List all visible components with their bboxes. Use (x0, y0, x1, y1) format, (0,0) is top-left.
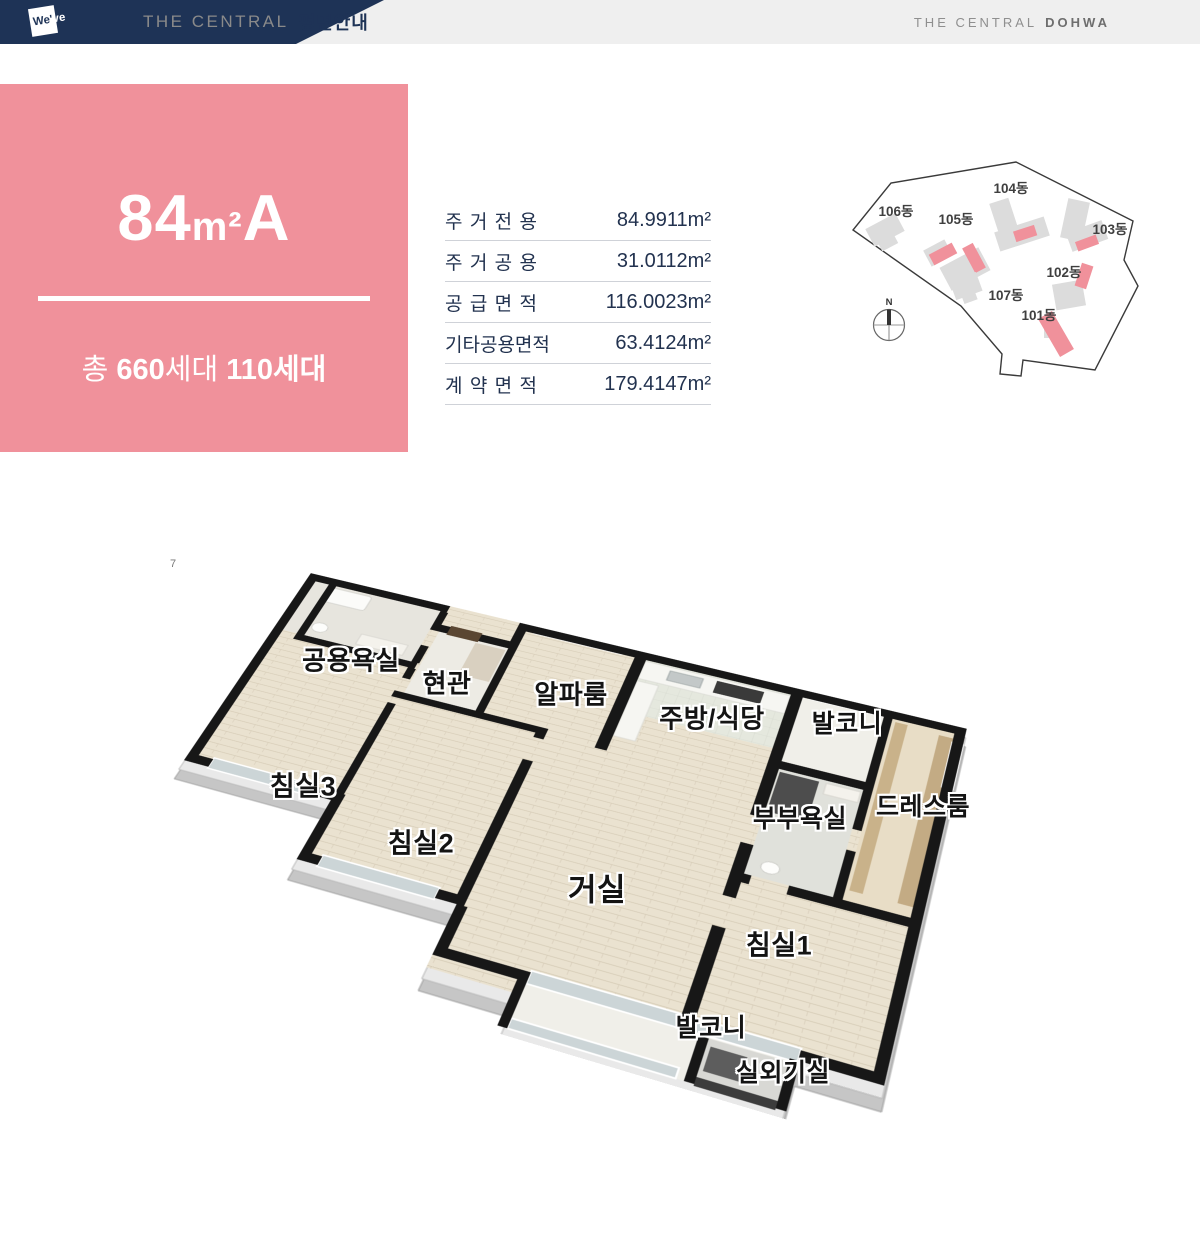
brochure-page: { "header": { "logo_a": "We'", "logo_b":… (0, 0, 1200, 1233)
area-value: 31.0112m² (617, 250, 711, 273)
logo-text-white: ve (52, 12, 67, 26)
logo-text-navy: We' (32, 14, 53, 29)
brand-right-name: THE CENTRAL (914, 15, 1037, 30)
area-value: 179.4147m² (604, 373, 711, 396)
area-table-row: 공급면적116.0023m² (445, 282, 711, 323)
area-value: 116.0023m² (606, 291, 711, 314)
floorplan-3d (71, 564, 999, 1156)
household-count-part: 660 (116, 354, 164, 386)
site-building-label: 106동 (879, 204, 914, 219)
area-table-row: 기타공용면적63.4124m² (445, 323, 711, 364)
household-count-part: 세대 (165, 354, 226, 386)
site-building-label: 105동 (939, 212, 974, 227)
brand-right-bold: DOHWA (1045, 15, 1110, 30)
compass-north-label: N (886, 297, 893, 308)
area-table-row: 주거전용84.9911m² (445, 200, 711, 241)
household-count-part: 110세대 (226, 354, 326, 386)
header-bar: We've THE CENTRAL 평면안내 THE CENTRAL DOHWA (0, 0, 1200, 44)
site-building-label: 102동 (1047, 265, 1082, 280)
unit-type-letter: A (243, 181, 291, 254)
floorplan-svg (71, 564, 999, 1156)
weve-logo: We've (28, 5, 58, 37)
household-count: 총 660세대 110세대 (0, 346, 408, 388)
page-title: 평면안내 (299, 9, 369, 35)
area-value: 63.4124m² (615, 332, 711, 355)
area-label: 주거전용 (445, 207, 537, 234)
stray-mark: 7 (170, 558, 176, 570)
unit-size: 84 (117, 181, 191, 254)
unit-type-panel: 84m²A 총 660세대 110세대 (0, 84, 408, 452)
household-count-part: 총 (82, 354, 117, 386)
site-plan: N 106동105동104동103동102동101동107동 (848, 148, 1148, 398)
area-value: 84.9911m² (617, 209, 711, 232)
compass: N (874, 297, 905, 341)
area-label: 기타공용면적 (445, 330, 550, 357)
site-building-label: 107동 (989, 288, 1024, 303)
divider-line (38, 296, 370, 301)
compass-needle (887, 310, 891, 326)
header-brand-right: THE CENTRAL DOHWA (914, 0, 1110, 44)
site-building-label: 103동 (1093, 222, 1128, 237)
area-table: 주거전용84.9911m²주거공용31.0112m²공급면적116.0023m²… (445, 200, 711, 405)
brand-name: THE CENTRAL (143, 12, 289, 32)
header-title-group: THE CENTRAL 평면안내 (143, 0, 369, 44)
unit-size-unit: m² (192, 205, 243, 249)
area-label: 공급면적 (445, 289, 537, 316)
area-label: 주거공용 (445, 248, 537, 275)
area-label: 계약면적 (445, 371, 537, 398)
area-table-row: 주거공용31.0112m² (445, 241, 711, 282)
site-building-label: 101동 (1022, 308, 1057, 323)
unit-type-title: 84m²A (0, 180, 408, 255)
area-table-row: 계약면적179.4147m² (445, 364, 711, 405)
site-building-label: 104동 (994, 181, 1029, 196)
